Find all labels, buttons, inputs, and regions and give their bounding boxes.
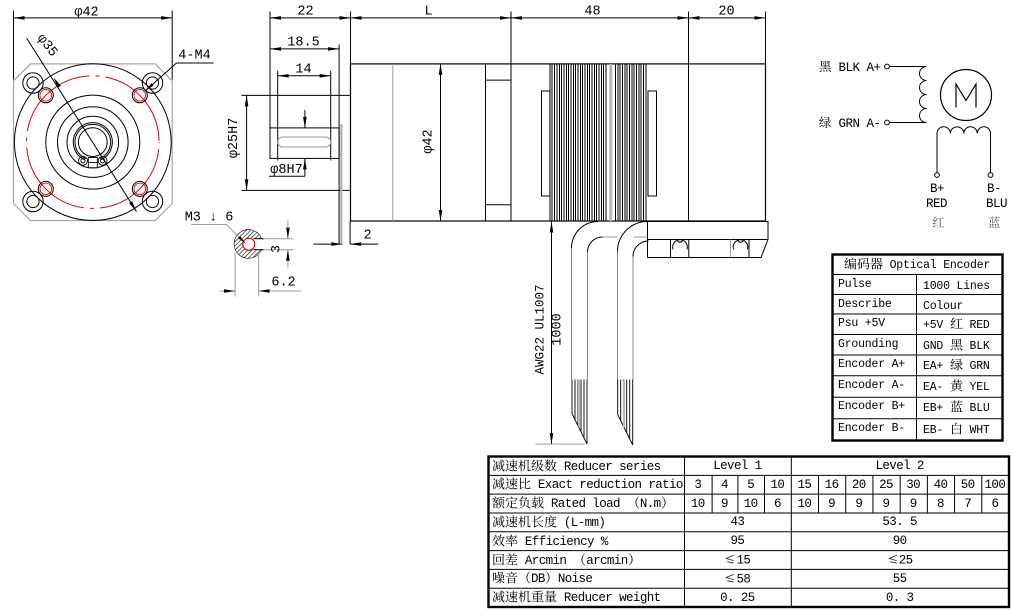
svg-text:4-M4: 4-M4 bbox=[178, 49, 210, 64]
svg-text:48: 48 bbox=[584, 5, 600, 20]
svg-text:φ42: φ42 bbox=[74, 6, 98, 21]
svg-text:φ8H7: φ8H7 bbox=[270, 163, 302, 178]
svg-text:φ42: φ42 bbox=[422, 129, 437, 153]
svg-text:2: 2 bbox=[363, 229, 371, 244]
svg-text:22: 22 bbox=[297, 5, 313, 20]
svg-text:18.5: 18.5 bbox=[287, 36, 319, 51]
svg-text:φ25H7: φ25H7 bbox=[227, 118, 242, 159]
svg-text:AWG22 UL1007: AWG22 UL1007 bbox=[534, 284, 548, 374]
svg-text:3: 3 bbox=[269, 245, 284, 253]
svg-text:20: 20 bbox=[718, 5, 734, 20]
svg-text:φ35: φ35 bbox=[33, 32, 60, 60]
svg-text:6.2: 6.2 bbox=[271, 276, 295, 291]
svg-text:1000: 1000 bbox=[551, 313, 566, 345]
svg-text:L: L bbox=[424, 5, 432, 20]
svg-text:M3 ↓ 6: M3 ↓ 6 bbox=[185, 211, 234, 226]
svg-text:14: 14 bbox=[295, 63, 311, 78]
